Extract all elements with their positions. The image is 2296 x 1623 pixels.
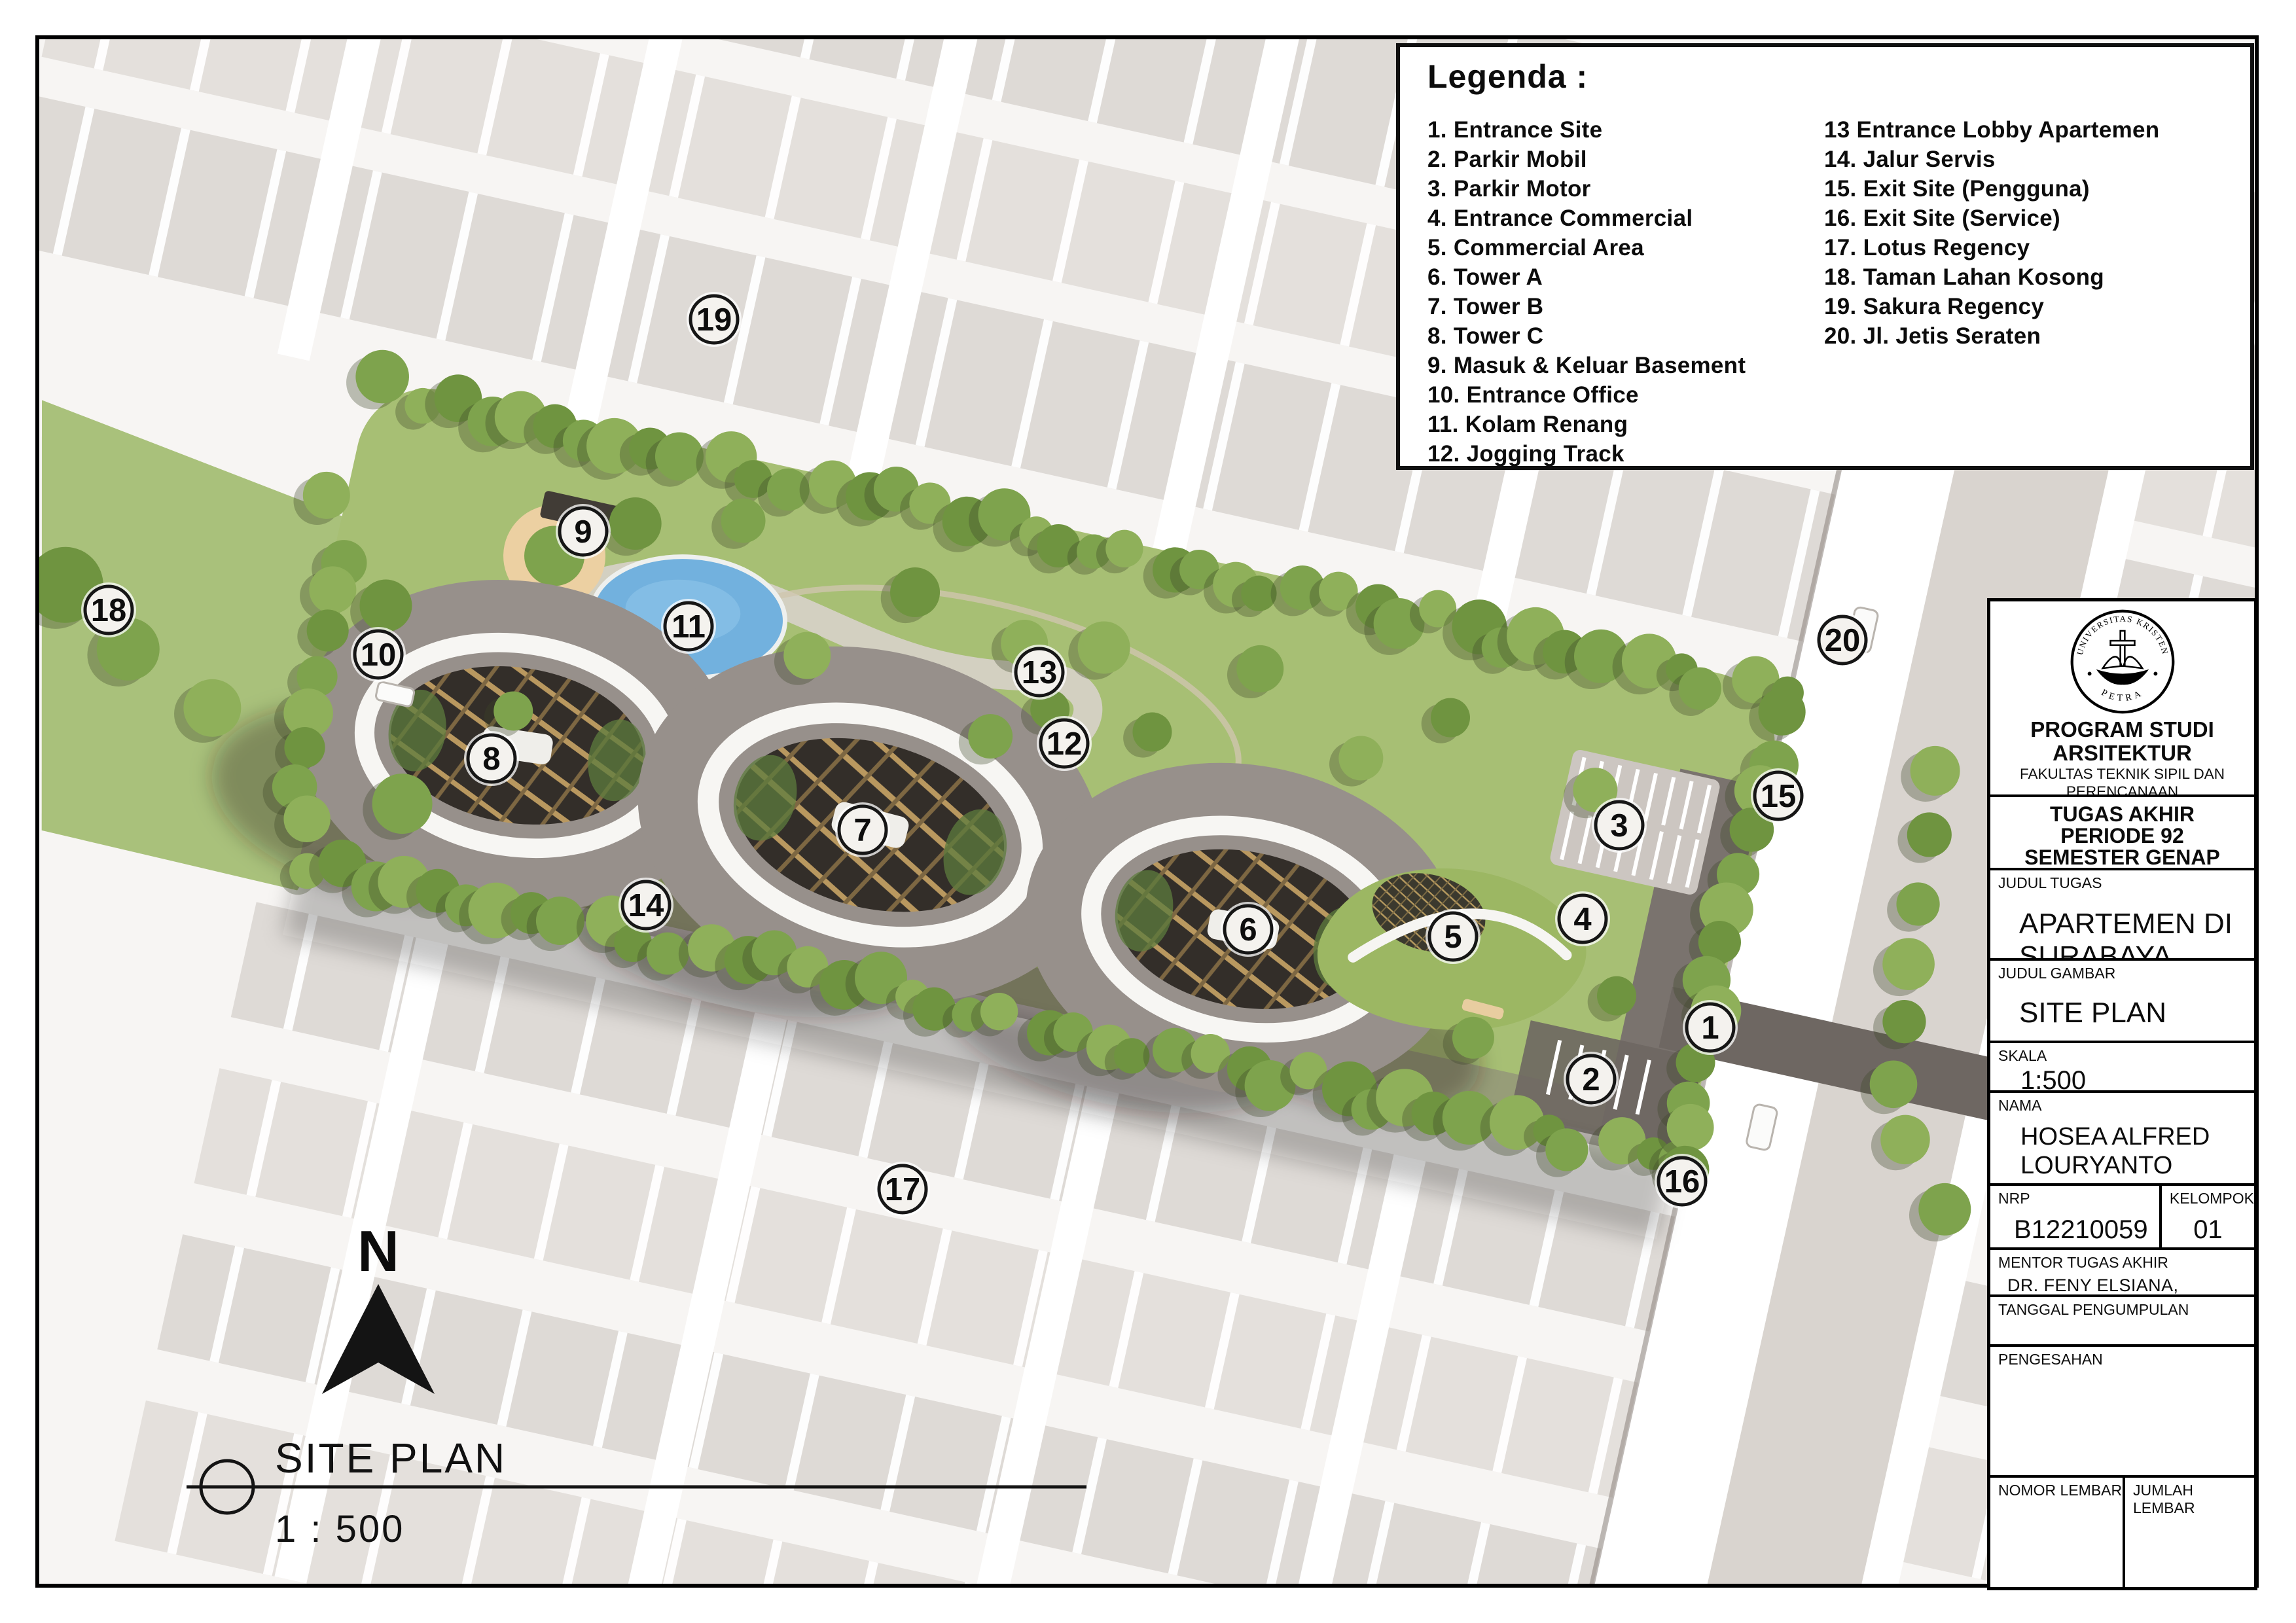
svg-text:12: 12	[1047, 726, 1083, 762]
svg-text:4: 4	[1573, 902, 1591, 937]
legend-item: 16. Exit Site (Service)	[1824, 204, 2160, 233]
skala-value: 1:500	[1990, 1065, 2254, 1090]
plan-marker-20: 20	[1815, 613, 1870, 668]
lembar-row: NOMOR LEMBAR JUMLAH LEMBAR	[1990, 1475, 2254, 1587]
tanggal-label: TANGGAL PENGUMPULAN	[1990, 1297, 2254, 1319]
jumlah-lembar-cell: JUMLAH LEMBAR	[2123, 1478, 2254, 1587]
north-label: N	[357, 1219, 399, 1283]
legend-item: 14. Jalur Servis	[1824, 145, 2160, 174]
plan-marker-18: 18	[81, 582, 136, 637]
plan-marker-8: 8	[464, 731, 519, 786]
plan-marker-16: 16	[1655, 1154, 1710, 1209]
legend-item: 1. Entrance Site	[1427, 115, 1746, 145]
svg-text:19: 19	[696, 302, 732, 338]
university-logo: UNIVERSITAS KRISTEN PETRA	[2068, 607, 2178, 717]
plan-marker-13: 13	[1012, 645, 1067, 700]
plan-marker-2: 2	[1564, 1052, 1619, 1107]
legend-item: 15. Exit Site (Pengguna)	[1824, 174, 2160, 204]
legend-item: 12. Jogging Track	[1427, 439, 1746, 469]
judul-gambar-label: JUDUL GAMBAR	[1990, 961, 2254, 982]
assignment-line3: SEMESTER GENAP 2024/2025	[1990, 847, 2254, 868]
svg-text:5: 5	[1444, 919, 1462, 955]
judul-gambar-value: SITE PLAN	[1990, 982, 2254, 1029]
plan-marker-5: 5	[1426, 909, 1480, 964]
tanggal-cell: TANGGAL PENGUMPULAN	[1990, 1294, 2254, 1344]
title-block-university-cell: UNIVERSITAS KRISTEN PETRA PROGRAM STUDI …	[1990, 601, 2254, 794]
assignment-cell: TUGAS AKHIR PERIODE 92 SEMESTER GENAP 20…	[1990, 794, 2254, 868]
nrp-cell: NRP B12210059	[1990, 1186, 2159, 1247]
scale-note-title: SITE PLAN	[275, 1435, 507, 1482]
drawing-sheet: 1234567891011121314151617181920 N SITE P…	[0, 0, 2296, 1623]
legend-item: 6. Tower A	[1427, 262, 1746, 292]
kelompok-cell: KELOMPOK 01	[2159, 1186, 2254, 1247]
assignment-line1: TUGAS AKHIR	[1990, 804, 2254, 825]
plan-marker-10: 10	[351, 627, 406, 682]
jumlah-lembar-label: JUMLAH LEMBAR	[2125, 1478, 2254, 1517]
legend-title: Legenda :	[1427, 58, 1588, 96]
legend-column-left: 1. Entrance Site2. Parkir Mobil3. Parkir…	[1427, 115, 1746, 469]
title-block: UNIVERSITAS KRISTEN PETRA PROGRAM STUDI …	[1987, 598, 2257, 1590]
program-name: PROGRAM STUDI ARSITEKTUR	[1990, 718, 2254, 765]
svg-text:20: 20	[1825, 623, 1861, 658]
judul-tugas-cell: JUDUL TUGAS APARTEMEN DI SURABAYA	[1990, 868, 2254, 958]
pengesahan-cell: PENGESAHAN	[1990, 1344, 2254, 1475]
legend-column-right: 13 Entrance Lobby Apartemen14. Jalur Ser…	[1824, 115, 2160, 351]
svg-text:9: 9	[574, 514, 592, 550]
kelompok-label: KELOMPOK	[2162, 1186, 2254, 1207]
plan-marker-6: 6	[1221, 902, 1276, 957]
legend-item: 9. Masuk & Keluar Basement	[1427, 351, 1746, 380]
svg-text:3: 3	[1610, 808, 1628, 844]
plan-marker-1: 1	[1683, 1000, 1738, 1055]
svg-text:2: 2	[1582, 1062, 1600, 1097]
skala-label: SKALA	[1990, 1043, 2254, 1065]
kelompok-value: 01	[2162, 1207, 2254, 1245]
plan-marker-14: 14	[619, 878, 673, 933]
scale-note-value: 1 : 500	[275, 1508, 404, 1550]
nama-value: HOSEA ALFRED LOURYANTO SETIYO	[1990, 1115, 2236, 1183]
mentor-cell: MENTOR TUGAS AKHIR DR. FENY ELSIANA, S.T…	[1990, 1247, 2254, 1294]
legend-item: 13 Entrance Lobby Apartemen	[1824, 115, 2160, 145]
svg-text:PETRA: PETRA	[2099, 687, 2145, 704]
plan-marker-7: 7	[835, 802, 890, 857]
plan-marker-19: 19	[687, 292, 742, 347]
judul-gambar-cell: JUDUL GAMBAR SITE PLAN	[1990, 958, 2254, 1041]
plan-marker-12: 12	[1037, 716, 1092, 771]
legend-item: 19. Sakura Regency	[1824, 292, 2160, 321]
svg-text:1: 1	[1701, 1010, 1719, 1046]
svg-text:13: 13	[1022, 655, 1058, 690]
faculty-name: FAKULTAS TEKNIK SIPIL DAN PERENCANAAN	[1990, 765, 2254, 794]
svg-text:10: 10	[361, 637, 397, 673]
plan-marker-11: 11	[661, 599, 716, 654]
legend-item: 7. Tower B	[1427, 292, 1746, 321]
plan-marker-4: 4	[1555, 891, 1610, 946]
legend-item: 17. Lotus Regency	[1824, 233, 2160, 262]
plan-marker-15: 15	[1751, 768, 1806, 823]
mentor-value: DR. FENY ELSIANA, S.T.,M.T.	[1990, 1272, 2254, 1294]
nama-label: NAMA	[1990, 1093, 2254, 1115]
ship-cross-emblem	[2087, 631, 2157, 685]
judul-tugas-label: JUDUL TUGAS	[1990, 870, 2254, 892]
svg-text:7: 7	[853, 813, 871, 848]
nomor-lembar-cell: NOMOR LEMBAR	[1990, 1478, 2123, 1587]
svg-text:14: 14	[628, 888, 664, 923]
legend-item: 10. Entrance Office	[1427, 380, 1746, 410]
legend-item: 4. Entrance Commercial	[1427, 204, 1746, 233]
nomor-lembar-label: NOMOR LEMBAR	[1990, 1478, 2123, 1499]
legend-panel: Legenda : 1. Entrance Site2. Parkir Mobi…	[1396, 43, 2254, 470]
pengesahan-label: PENGESAHAN	[1990, 1347, 2254, 1368]
legend-item: 18. Taman Lahan Kosong	[1824, 262, 2160, 292]
nrp-value: B12210059	[1990, 1207, 2159, 1245]
plan-marker-17: 17	[875, 1162, 930, 1217]
nama-cell: NAMA HOSEA ALFRED LOURYANTO SETIYO	[1990, 1090, 2254, 1183]
legend-item: 3. Parkir Motor	[1427, 174, 1746, 204]
legend-item: 8. Tower C	[1427, 321, 1746, 351]
skala-cell: SKALA 1:500	[1990, 1041, 2254, 1090]
legend-item: 2. Parkir Mobil	[1427, 145, 1746, 174]
plan-marker-9: 9	[556, 504, 611, 559]
svg-text:8: 8	[482, 741, 500, 777]
legend-item: 5. Commercial Area	[1427, 233, 1746, 262]
assignment-line2: PERIODE 92	[1990, 825, 2254, 847]
plan-marker-3: 3	[1592, 798, 1647, 853]
judul-tugas-value: APARTEMEN DI SURABAYA	[1990, 892, 2254, 958]
svg-text:16: 16	[1664, 1164, 1700, 1200]
svg-text:11: 11	[672, 609, 706, 645]
svg-text:17: 17	[885, 1172, 921, 1207]
nrp-kelompok-row: NRP B12210059 KELOMPOK 01	[1990, 1183, 2254, 1247]
legend-item: 20. Jl. Jetis Seraten	[1824, 321, 2160, 351]
svg-text:18: 18	[91, 593, 127, 628]
svg-text:15: 15	[1761, 779, 1797, 814]
nrp-label: NRP	[1990, 1186, 2159, 1207]
legend-item: 11. Kolam Renang	[1427, 410, 1746, 439]
svg-text:6: 6	[1239, 912, 1257, 948]
mentor-label: MENTOR TUGAS AKHIR	[1990, 1250, 2254, 1272]
